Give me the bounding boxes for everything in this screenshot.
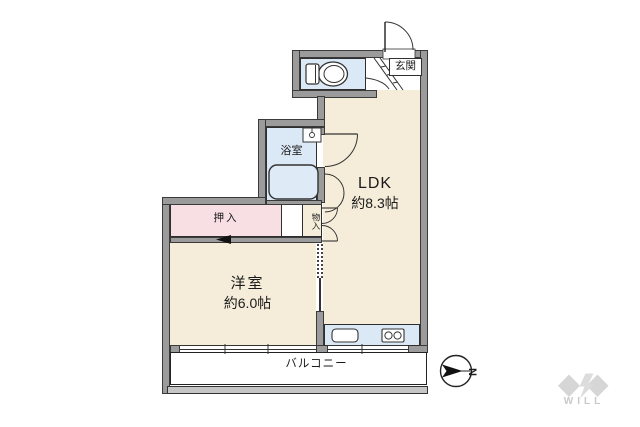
compass-north-label: N [464, 364, 480, 380]
toilet-door-arc [366, 78, 389, 89]
will-logo-text: WILL [552, 396, 616, 408]
storage-doors [322, 208, 338, 241]
western-room-size-label: 約6.0帖 [180, 295, 315, 311]
will-logo-icon [558, 374, 609, 399]
floor-plan-canvas: 玄関 浴室 LDK 約8.3帖 洋室 約6.0帖 押入 物入 バルコニー N W… [0, 0, 640, 427]
stove-icon [382, 329, 404, 342]
bathtub-icon [269, 165, 318, 199]
ldk-size-label: 約8.3帖 [330, 195, 420, 211]
ldk-label: LDK [330, 175, 420, 193]
kitchen-sink-icon [332, 329, 358, 342]
entrance-label: 玄関 [395, 60, 416, 72]
western-room-label: 洋室 [180, 275, 315, 292]
bathroom-label: 浴室 [266, 145, 317, 158]
balcony-label: バルコニー [170, 358, 445, 371]
toilet-icon [306, 62, 348, 86]
storage-label: 物入 [304, 207, 320, 235]
entrance-label-box: 玄関 [389, 58, 422, 76]
closet-arrow-icon [216, 235, 231, 244]
window-ticks [225, 344, 362, 354]
washbasin-icon [303, 128, 321, 142]
bathroom-door [325, 134, 358, 167]
closet-label: 押入 [170, 212, 282, 224]
entrance-door [383, 22, 415, 59]
